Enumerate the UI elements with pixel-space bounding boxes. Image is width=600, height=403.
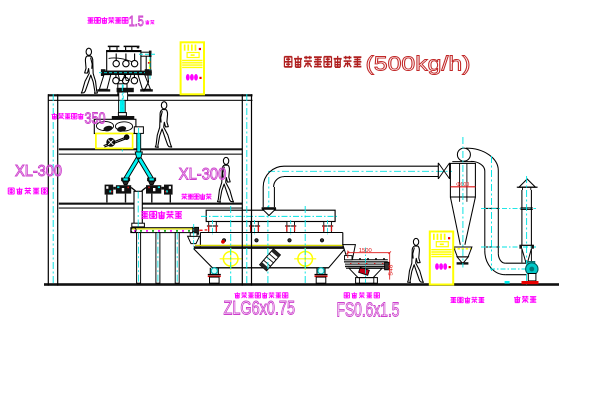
svg-text:350: 350 <box>85 111 106 128</box>
svg-text:XL-300: XL-300 <box>179 165 227 184</box>
svg-text:ZLG6x0.75: ZLG6x0.75 <box>224 299 296 320</box>
svg-text:1500: 1500 <box>359 248 372 254</box>
svg-text:(500kg/h): (500kg/h) <box>366 53 471 76</box>
svg-text:1.5: 1.5 <box>129 13 144 30</box>
svg-text:XL-300: XL-300 <box>15 163 62 180</box>
svg-text:FS0.6x1.5: FS0.6x1.5 <box>337 300 400 322</box>
svg-text:548: 548 <box>389 265 395 276</box>
